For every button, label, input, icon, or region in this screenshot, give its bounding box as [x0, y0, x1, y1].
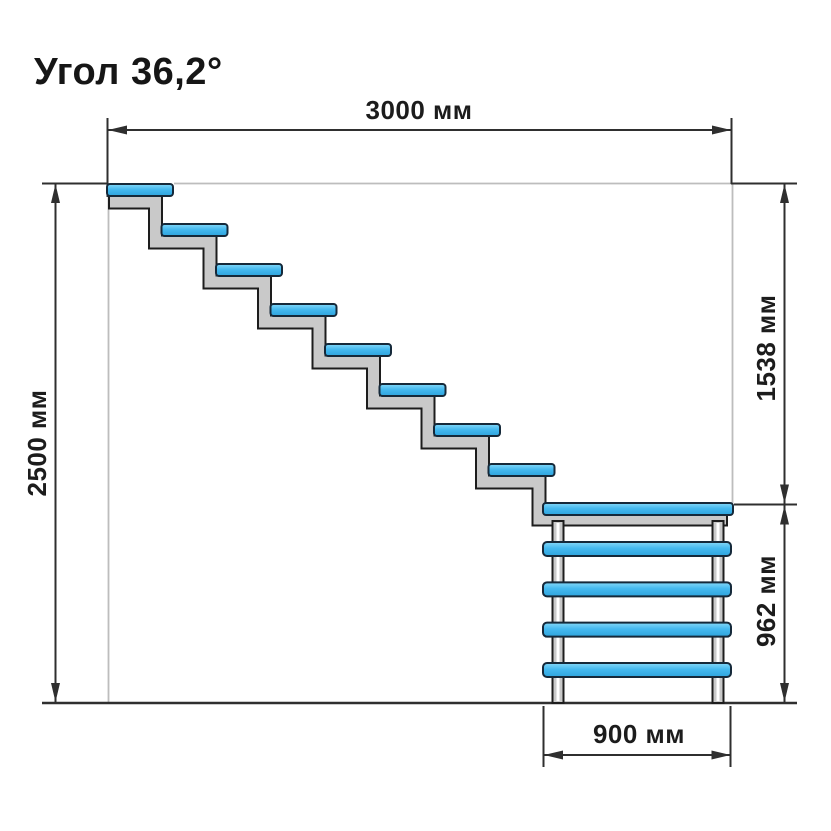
arrow-left-down — [51, 683, 60, 702]
stringer-body — [110, 202, 726, 519]
dim-top-label: 3000 мм — [365, 95, 472, 125]
stringer-outline — [108, 202, 728, 519]
landing-rung — [543, 623, 731, 637]
stair-tread — [162, 224, 228, 236]
stair-tread — [107, 184, 173, 196]
arrow-left-up — [51, 184, 60, 203]
dim-right-upper-label: 1538 мм — [751, 294, 781, 401]
landing-rung — [543, 542, 731, 556]
arrow-right-lower-down — [780, 683, 789, 702]
dim-bottom-label: 900 мм — [593, 719, 685, 749]
stair-tread — [325, 344, 391, 356]
arrow-top-right — [712, 126, 731, 135]
arrow-right-upper-up — [780, 184, 789, 203]
arrow-top-left — [108, 126, 127, 135]
stair-tread — [434, 424, 500, 436]
dim-right-lower-label: 962 мм — [751, 555, 781, 647]
staircase-diagram: Угол 36,2° 3000 мм 2500 мм 1538 мм 962 м… — [0, 0, 831, 831]
stair-tread — [489, 464, 555, 476]
page-title: Угол 36,2° — [34, 51, 223, 93]
landing-platform-tread — [543, 503, 733, 515]
stair-tread — [271, 304, 337, 316]
stair-diagram-page: Угол 36,2° 3000 мм 2500 мм 1538 мм 962 м… — [0, 0, 831, 831]
dim-left-label: 2500 мм — [22, 389, 52, 496]
arrow-bottom-left — [544, 751, 563, 760]
stair-tread — [216, 264, 282, 276]
staircase — [107, 184, 733, 703]
landing-rung — [543, 663, 731, 677]
arrow-right-lower-up — [780, 506, 789, 525]
arrow-bottom-right — [712, 751, 731, 760]
arrow-right-upper-down — [780, 485, 789, 504]
landing-rung — [543, 582, 731, 596]
stair-tread — [380, 384, 446, 396]
